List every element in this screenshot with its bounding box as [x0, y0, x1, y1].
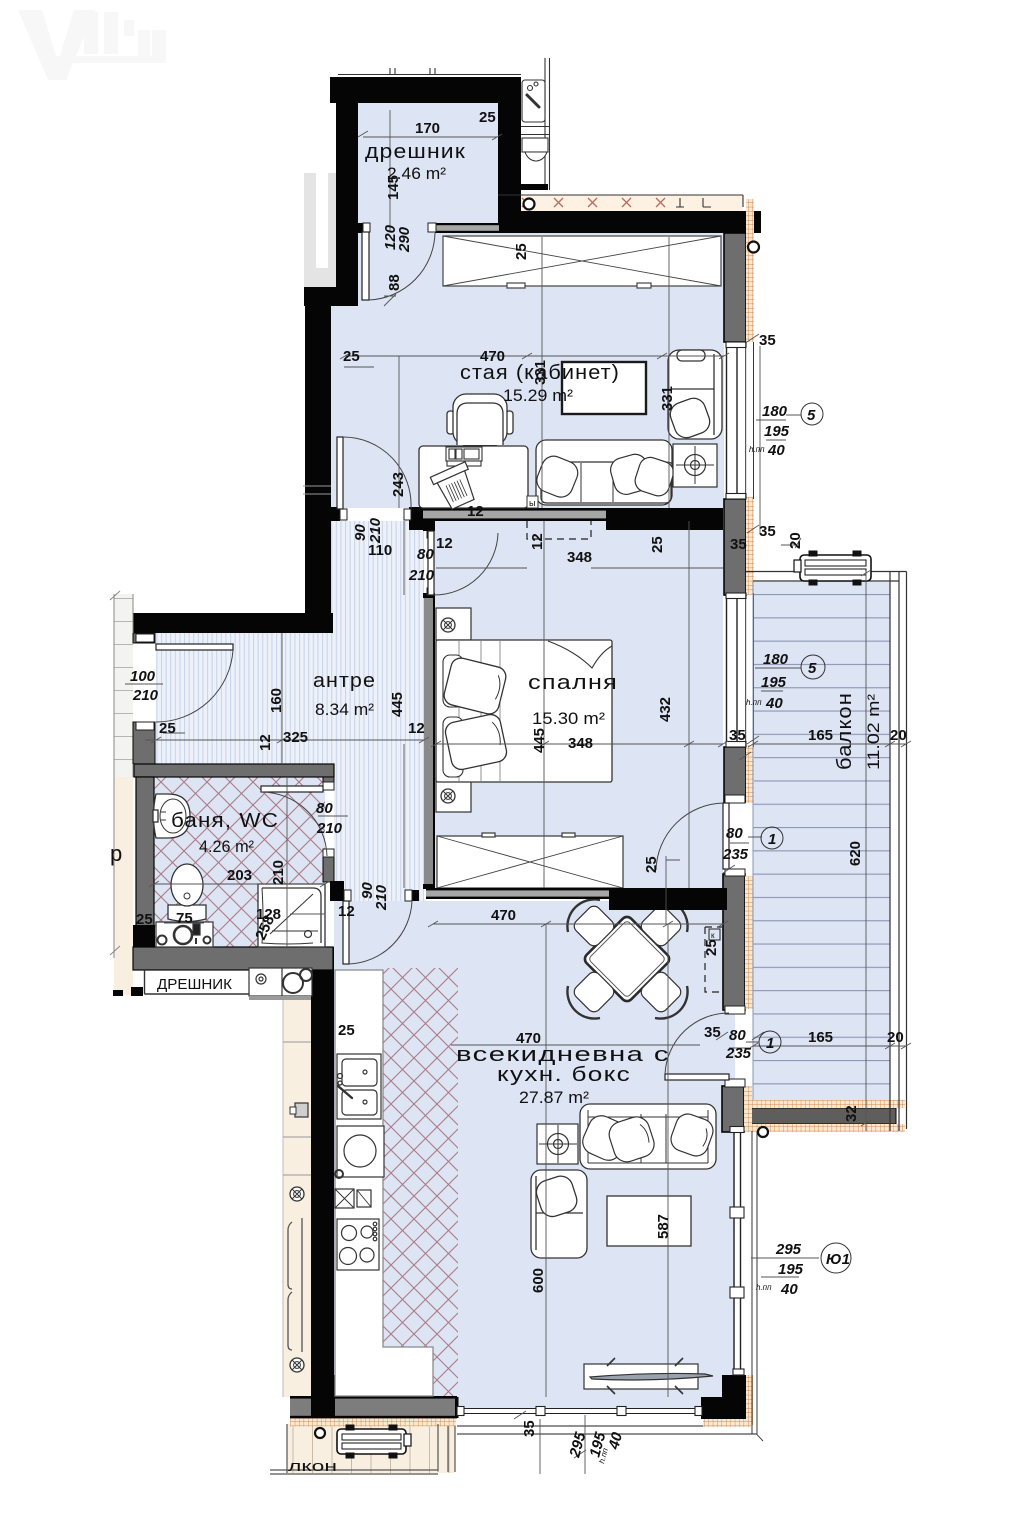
svg-text:к: к — [711, 931, 715, 940]
svg-text:80: 80 — [316, 800, 333, 817]
svg-text:1: 1 — [766, 1035, 774, 1052]
svg-text:445: 445 — [389, 692, 406, 717]
svg-text:25: 25 — [703, 939, 720, 956]
svg-text:210: 210 — [367, 517, 384, 544]
svg-text:195: 195 — [778, 1261, 804, 1278]
svg-text:203: 203 — [227, 867, 252, 884]
svg-text:кухн. бокс: кухн. бокс — [497, 1064, 631, 1086]
svg-text:210: 210 — [316, 820, 343, 837]
svg-text:лкон: лкон — [288, 1458, 337, 1475]
svg-text:25: 25 — [343, 348, 360, 365]
svg-text:165: 165 — [808, 1029, 833, 1046]
svg-text:27.87 m²: 27.87 m² — [519, 1088, 589, 1107]
svg-text:35: 35 — [729, 727, 746, 744]
svg-text:290: 290 — [396, 226, 413, 253]
svg-text:11.02 m²: 11.02 m² — [864, 694, 883, 770]
svg-text:180: 180 — [763, 651, 789, 668]
svg-text:35: 35 — [730, 536, 747, 553]
svg-text:600: 600 — [530, 1268, 547, 1293]
svg-text:р: р — [110, 841, 122, 866]
svg-text:210: 210 — [132, 687, 159, 704]
svg-text:445: 445 — [531, 728, 548, 753]
svg-text:баня, WC: баня, WC — [171, 810, 279, 832]
svg-text:470: 470 — [480, 348, 505, 365]
svg-text:12: 12 — [529, 533, 546, 550]
svg-text:8.34 m²: 8.34 m² — [315, 700, 374, 719]
svg-text:12: 12 — [436, 535, 453, 552]
svg-text:20: 20 — [787, 532, 804, 549]
svg-text:470: 470 — [491, 907, 516, 924]
svg-text:25: 25 — [479, 109, 496, 126]
svg-text:432: 432 — [657, 697, 674, 722]
svg-text:40: 40 — [767, 442, 785, 459]
svg-text:145: 145 — [385, 175, 402, 200]
svg-text:35: 35 — [521, 1420, 538, 1437]
svg-text:160: 160 — [268, 688, 285, 713]
svg-text:12: 12 — [467, 503, 484, 520]
svg-text:15.30 m²: 15.30 m² — [532, 709, 605, 728]
svg-text:88: 88 — [386, 274, 403, 291]
svg-text:5: 5 — [807, 407, 816, 424]
svg-text:165: 165 — [808, 727, 833, 744]
svg-text:325: 325 — [283, 729, 308, 746]
svg-text:35: 35 — [759, 523, 776, 540]
svg-text:25: 25 — [159, 720, 176, 737]
svg-text:80: 80 — [726, 825, 743, 842]
svg-text:180: 180 — [762, 403, 788, 420]
svg-text:235: 235 — [725, 1045, 752, 1062]
svg-text:331: 331 — [659, 386, 676, 411]
svg-text:331: 331 — [532, 360, 549, 385]
svg-text:ы: ы — [529, 498, 535, 508]
svg-text:243: 243 — [390, 472, 407, 497]
svg-text:ДРЕШНИК: ДРЕШНИК — [157, 976, 232, 993]
svg-text:80: 80 — [417, 546, 434, 563]
svg-text:15.29 m²: 15.29 m² — [503, 386, 573, 405]
svg-text:210: 210 — [270, 860, 287, 885]
svg-text:100: 100 — [130, 668, 156, 685]
svg-text:170: 170 — [415, 120, 440, 137]
svg-text:110: 110 — [368, 542, 392, 559]
svg-text:210: 210 — [408, 567, 435, 584]
svg-text:587: 587 — [655, 1214, 672, 1239]
svg-text:32: 32 — [843, 1105, 860, 1122]
svg-text:балкон: балкон — [834, 692, 856, 770]
svg-text:спалня: спалня — [528, 672, 618, 694]
svg-text:35: 35 — [759, 332, 776, 349]
svg-text:295: 295 — [775, 1241, 802, 1258]
svg-text:5: 5 — [808, 660, 817, 677]
svg-text:235: 235 — [722, 846, 749, 863]
svg-text:195: 195 — [761, 674, 787, 691]
svg-text:h.пп: h.пп — [749, 445, 765, 454]
svg-text:210: 210 — [373, 884, 390, 911]
svg-text:20: 20 — [887, 1029, 904, 1046]
svg-text:40: 40 — [765, 695, 783, 712]
svg-text:20: 20 — [890, 727, 907, 744]
svg-text:75: 75 — [176, 910, 193, 927]
svg-text:35: 35 — [704, 1024, 721, 1041]
svg-text:620: 620 — [847, 841, 864, 866]
svg-text:25: 25 — [643, 856, 660, 873]
svg-text:дрешник: дрешник — [365, 141, 466, 163]
svg-text:всекидневна с: всекидневна с — [456, 1044, 670, 1066]
svg-text:12: 12 — [338, 903, 355, 920]
svg-text:195: 195 — [764, 423, 790, 440]
svg-text:25: 25 — [136, 911, 153, 928]
svg-text:h.пп: h.пп — [756, 1283, 772, 1292]
svg-text:80: 80 — [729, 1027, 746, 1044]
svg-text:1: 1 — [768, 831, 776, 848]
svg-text:25: 25 — [338, 1022, 355, 1039]
svg-text:348: 348 — [568, 735, 593, 752]
svg-text:470: 470 — [516, 1030, 541, 1047]
svg-text:25: 25 — [513, 243, 530, 260]
svg-text:40: 40 — [780, 1281, 798, 1298]
svg-text:25: 25 — [649, 536, 666, 553]
svg-text:12: 12 — [257, 734, 274, 751]
svg-text:4.26 m²: 4.26 m² — [199, 837, 254, 856]
svg-text:348: 348 — [567, 549, 592, 566]
svg-text:Ю1: Ю1 — [826, 1251, 850, 1268]
svg-text:12: 12 — [408, 720, 425, 737]
svg-text:антре: антре — [313, 670, 376, 692]
svg-text:h.пп: h.пп — [746, 698, 762, 707]
